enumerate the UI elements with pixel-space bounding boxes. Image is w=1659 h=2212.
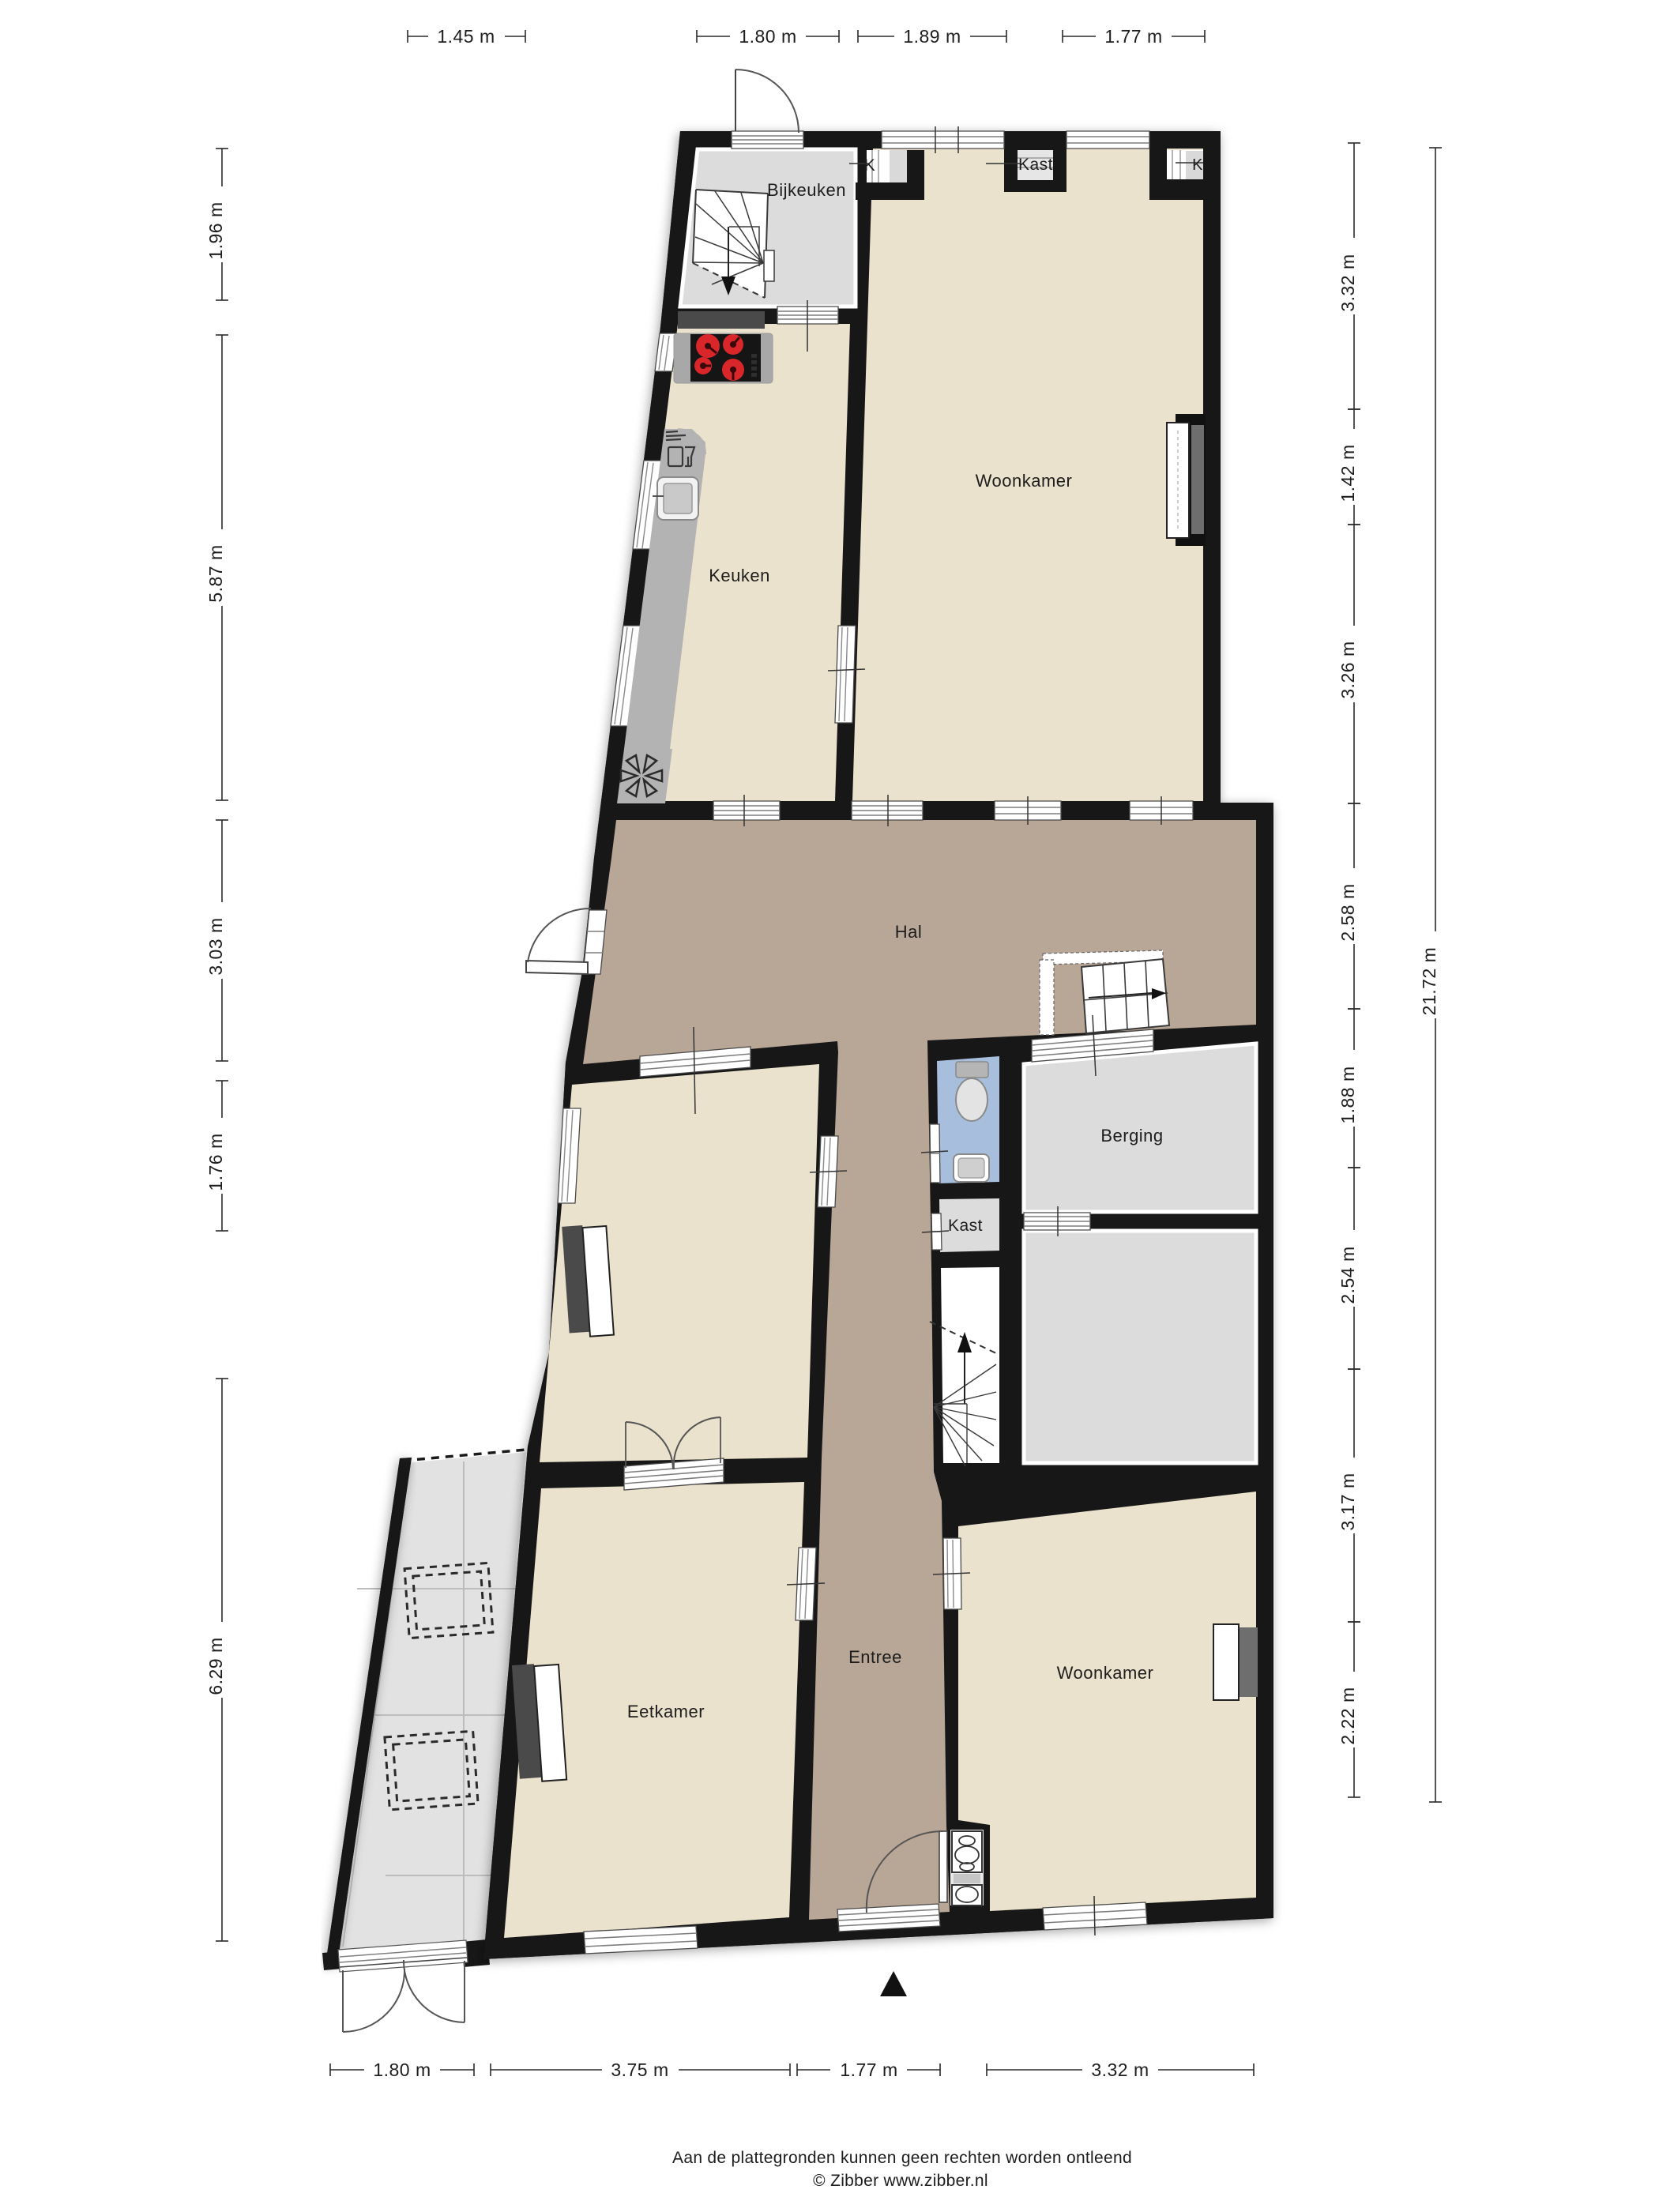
svg-text:3.32 m: 3.32 m [1337,254,1358,311]
svg-text:© Zibber www.zibber.nl: © Zibber www.zibber.nl [813,2172,988,2190]
svg-text:Aan de plattegronden kunnen ge: Aan de plattegronden kunnen geen rechten… [672,2149,1132,2167]
svg-text:1.42 m: 1.42 m [1337,444,1358,502]
svg-text:21.72 m: 21.72 m [1419,947,1439,1016]
svg-text:1.89 m: 1.89 m [903,26,961,47]
svg-text:Eetkamer: Eetkamer [627,1702,705,1721]
svg-text:5.87 m: 5.87 m [205,544,226,602]
svg-text:Berging: Berging [1100,1126,1163,1145]
svg-text:1.80 m: 1.80 m [739,26,796,47]
svg-text:1.80 m: 1.80 m [373,2060,431,2080]
svg-text:Keuken: Keuken [709,566,770,585]
svg-text:Kast: Kast [1018,156,1053,174]
svg-text:1.77 m: 1.77 m [840,2060,897,2080]
svg-text:2.22 m: 2.22 m [1337,1687,1358,1744]
svg-text:Woonkamer: Woonkamer [976,471,1073,491]
svg-text:1.45 m: 1.45 m [437,26,495,47]
svg-text:Woonkamer: Woonkamer [1057,1663,1154,1683]
svg-text:1.76 m: 1.76 m [205,1133,226,1191]
svg-text:3.03 m: 3.03 m [205,917,226,975]
svg-text:Bijkeuken: Bijkeuken [767,180,846,200]
svg-text:Hal: Hal [895,922,923,942]
svg-text:1.88 m: 1.88 m [1337,1066,1358,1123]
svg-text:2.58 m: 2.58 m [1337,883,1358,941]
svg-text:1.96 m: 1.96 m [205,201,226,259]
svg-text:3.26 m: 3.26 m [1337,641,1358,698]
svg-text:3.75 m: 3.75 m [611,2060,668,2080]
svg-text:3.32 m: 3.32 m [1091,2060,1149,2080]
svg-text:Entree: Entree [848,1647,902,1667]
svg-text:Kast: Kast [948,1217,983,1235]
svg-text:K: K [1192,156,1203,174]
svg-text:6.29 m: 6.29 m [205,1637,226,1695]
svg-text:2.54 m: 2.54 m [1337,1246,1358,1303]
svg-text:1.77 m: 1.77 m [1104,26,1162,47]
svg-text:3.17 m: 3.17 m [1337,1473,1358,1530]
svg-text:K: K [864,156,876,175]
